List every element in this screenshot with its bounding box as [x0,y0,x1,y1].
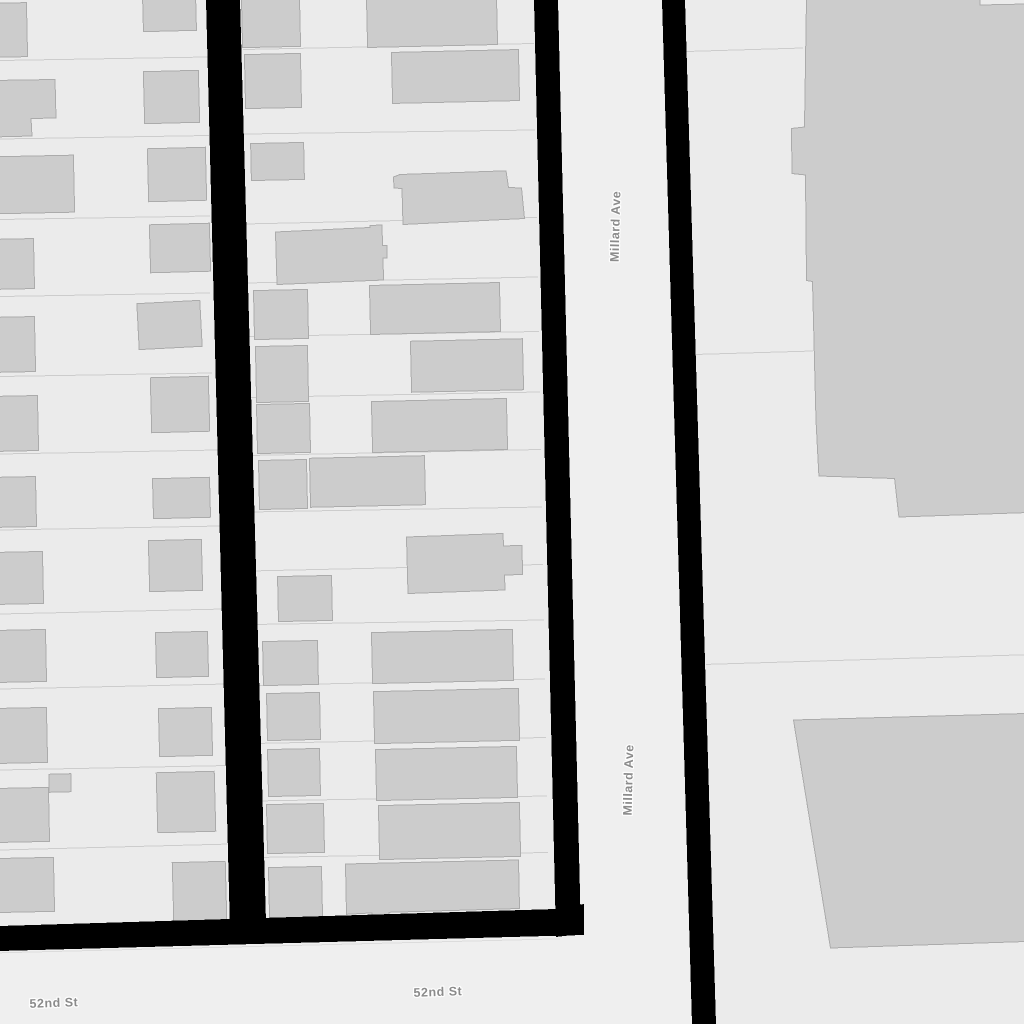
svg-text:Millard Ave: Millard Ave [608,191,624,263]
svg-text:52nd St: 52nd St [29,995,78,1011]
svg-text:Millard Ave: Millard Ave [621,744,637,816]
svg-text:52nd St: 52nd St [413,984,462,1000]
